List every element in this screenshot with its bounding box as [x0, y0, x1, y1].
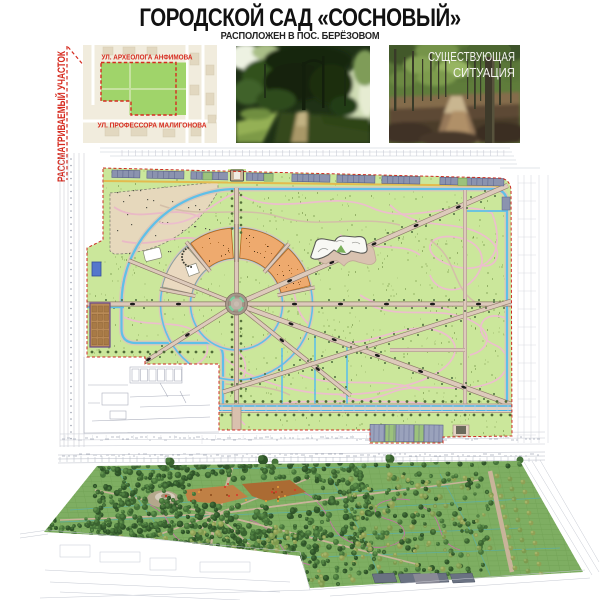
svg-text:СИТУАЦИЯ: СИТУАЦИЯ — [453, 66, 515, 80]
svg-text:УЛ. АРХЕОЛОГА АНФИМОВА: УЛ. АРХЕОЛОГА АНФИМОВА — [102, 53, 193, 62]
svg-text:СУЩЕСТВУЮЩАЯ: СУЩЕСТВУЮЩАЯ — [428, 50, 515, 64]
svg-text:УЛ. ПРОФЕССОРА МАЛИГОНОВА: УЛ. ПРОФЕССОРА МАЛИГОНОВА — [98, 121, 207, 130]
